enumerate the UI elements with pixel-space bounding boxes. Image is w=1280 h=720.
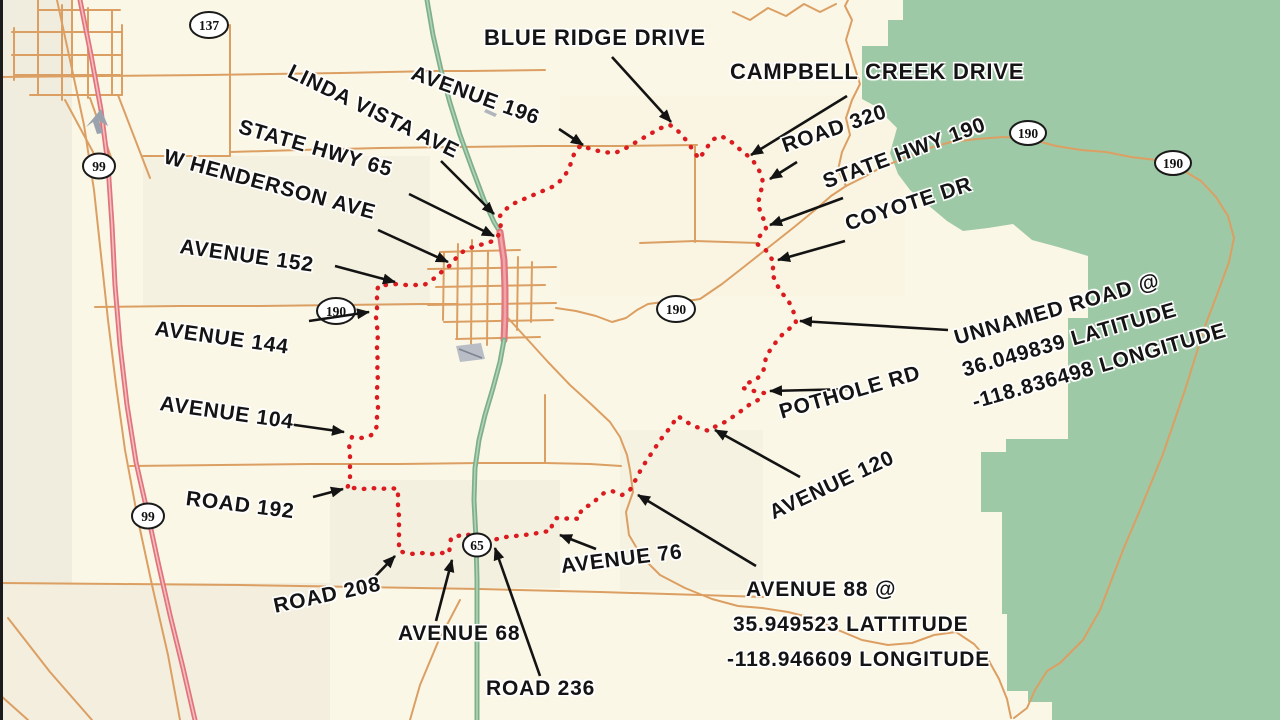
national-forest-region bbox=[862, 0, 1280, 720]
highway-shield-65: 65 bbox=[463, 534, 491, 557]
highway-shield-99: 99 bbox=[132, 504, 164, 529]
highway-shield-137: 137 bbox=[190, 12, 228, 38]
shield-number: 190 bbox=[1018, 126, 1039, 141]
shield-number: 137 bbox=[199, 18, 220, 33]
highway-shield-99: 99 bbox=[83, 154, 115, 179]
shield-number: 99 bbox=[141, 509, 155, 524]
forest-area bbox=[862, 0, 1280, 720]
arrow-linda-vista-ave bbox=[441, 161, 494, 214]
building-icon bbox=[456, 343, 485, 362]
map-canvas[interactable]: 137999919019019019065 bbox=[0, 0, 1280, 720]
map-tick-icon bbox=[484, 109, 497, 117]
shield-number: 190 bbox=[1163, 156, 1184, 171]
highway-shield-190: 190 bbox=[1010, 121, 1046, 145]
shield-number: 65 bbox=[470, 538, 484, 553]
shield-number: 190 bbox=[666, 302, 687, 317]
arrow-pothole-rd bbox=[770, 389, 851, 391]
highway-65-line-north bbox=[427, 0, 500, 232]
arrow-unnamed-road bbox=[800, 321, 948, 330]
arrow-avenue-104 bbox=[281, 423, 344, 432]
shield-number: 99 bbox=[92, 159, 106, 174]
map-viewport[interactable]: 137999919019019019065 BLUE RIDGE DRIVECA… bbox=[0, 0, 1280, 720]
highway-shield-190: 190 bbox=[1155, 151, 1191, 175]
map-left-border bbox=[0, 0, 3, 720]
arrow-avenue-76 bbox=[560, 535, 596, 549]
highway-shield-190: 190 bbox=[657, 296, 695, 322]
